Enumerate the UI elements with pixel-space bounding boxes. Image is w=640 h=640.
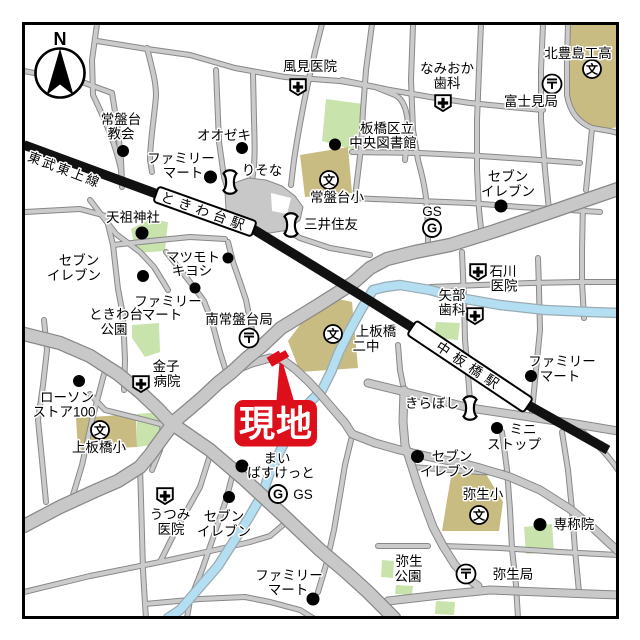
svg-text:北豊島工高: 北豊島工高 [544, 45, 612, 61]
svg-text:GS: GS [422, 204, 442, 219]
svg-text:三井住友: 三井住友 [304, 217, 358, 232]
svg-text:弥生局: 弥生局 [493, 566, 534, 582]
svg-text:専称院: 専称院 [554, 517, 595, 532]
svg-text:セブンイレブン: セブンイレブン [481, 168, 535, 199]
svg-text:天祖神社: 天祖神社 [106, 210, 160, 225]
svg-text:GS: GS [293, 487, 313, 502]
svg-text:マツモトキヨシ: マツモトキヨシ [166, 250, 220, 279]
svg-text:金子病院: 金子病院 [153, 359, 181, 389]
svg-text:矢部歯科: 矢部歯科 [439, 288, 466, 318]
svg-text:オオゼキ: オオゼキ [197, 128, 251, 143]
svg-text:富士見局: 富士見局 [504, 93, 558, 109]
svg-text:弥生公園: 弥生公園 [395, 553, 423, 584]
svg-text:りそな: りそな [242, 163, 283, 178]
svg-text:上板橋小: 上板橋小 [72, 440, 126, 455]
svg-text:セブンイレブン: セブンイレブン [197, 508, 251, 539]
svg-text:ローソンストア100: ローソンストア100 [32, 390, 95, 420]
svg-text:現地: 現地 [239, 403, 313, 444]
svg-text:板橋区立中央図書館: 板橋区立中央図書館 [349, 121, 417, 151]
svg-text:N: N [54, 29, 67, 49]
svg-text:風見医院: 風見医院 [283, 59, 337, 74]
svg-text:きらぼし: きらぼし [405, 396, 459, 411]
svg-text:常盤台小: 常盤台小 [310, 190, 364, 205]
svg-text:弥生小: 弥生小 [463, 486, 504, 502]
svg-text:南常盤台局: 南常盤台局 [205, 312, 273, 327]
svg-text:石川医院: 石川医院 [490, 264, 519, 294]
